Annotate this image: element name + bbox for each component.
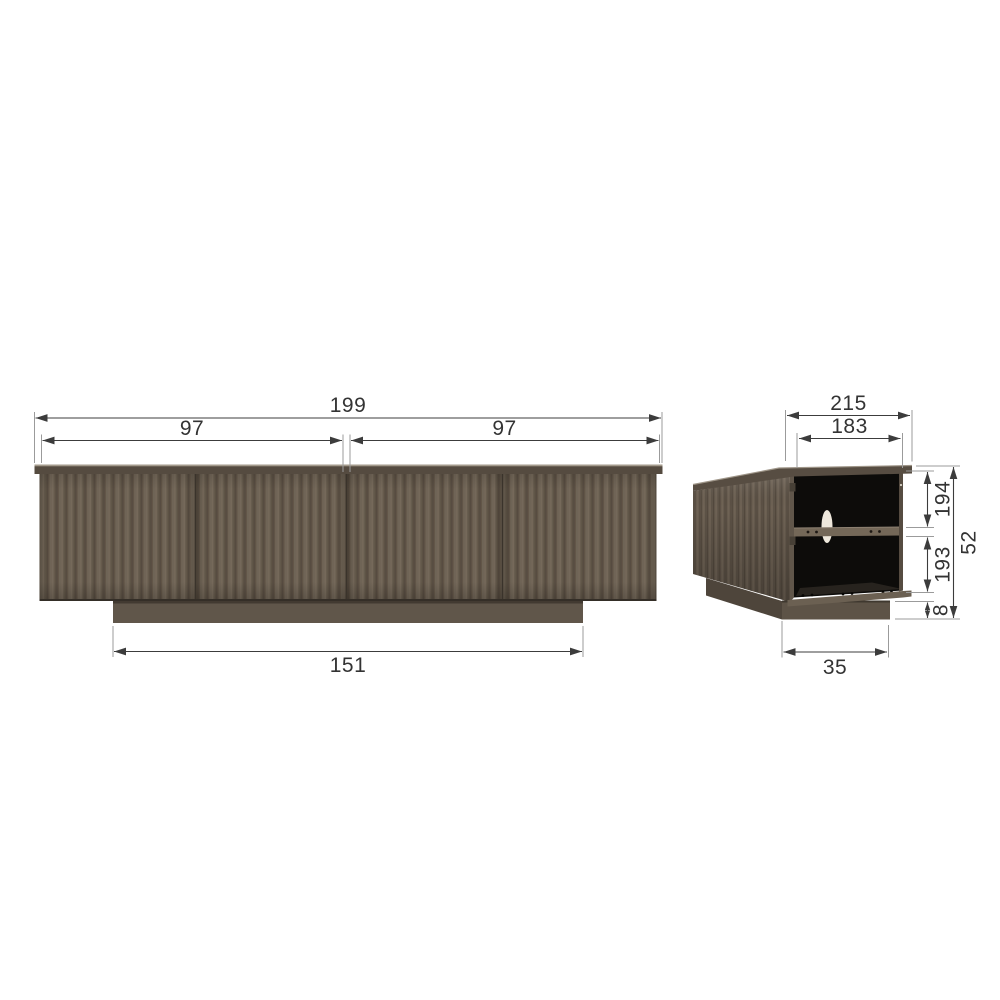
shelf-pin-hole bbox=[900, 484, 902, 486]
middle-shelf bbox=[794, 527, 903, 537]
cable-hole bbox=[822, 510, 833, 543]
dim-label-upper-compartment: 194 bbox=[932, 481, 955, 518]
product-dimension-diagram: 199 97 97 151 bbox=[0, 0, 1000, 1000]
front-body-lighting bbox=[40, 474, 657, 601]
front-top-board-highlight bbox=[35, 465, 663, 467]
side-view: 215 183 194 193 8 52 35 bbox=[693, 392, 981, 679]
diagram-canvas: 199 97 97 151 bbox=[0, 0, 1000, 1000]
dim-label-side-inner-depth: 183 bbox=[831, 415, 868, 438]
dim-label-plinth-height: 8 bbox=[930, 604, 953, 616]
dim-label-front-left-doors: 97 bbox=[180, 417, 204, 440]
dim-label-side-total-depth: 215 bbox=[830, 392, 867, 415]
dim-label-lower-compartment: 193 bbox=[932, 546, 955, 583]
front-plinth bbox=[113, 601, 583, 623]
front-view: 199 97 97 151 bbox=[35, 394, 663, 677]
dim-label-front-plinth-width: 151 bbox=[330, 654, 367, 677]
dim-label-front-total-width: 199 bbox=[330, 394, 367, 417]
front-plinth-shadow bbox=[113, 601, 583, 604]
dim-label-total-height: 52 bbox=[958, 530, 981, 554]
dim-label-plinth-depth: 35 bbox=[823, 656, 847, 679]
opening-right-edge bbox=[899, 473, 903, 592]
dim-label-front-right-doors: 97 bbox=[492, 417, 516, 440]
front-body-bottom-edge bbox=[40, 599, 657, 601]
